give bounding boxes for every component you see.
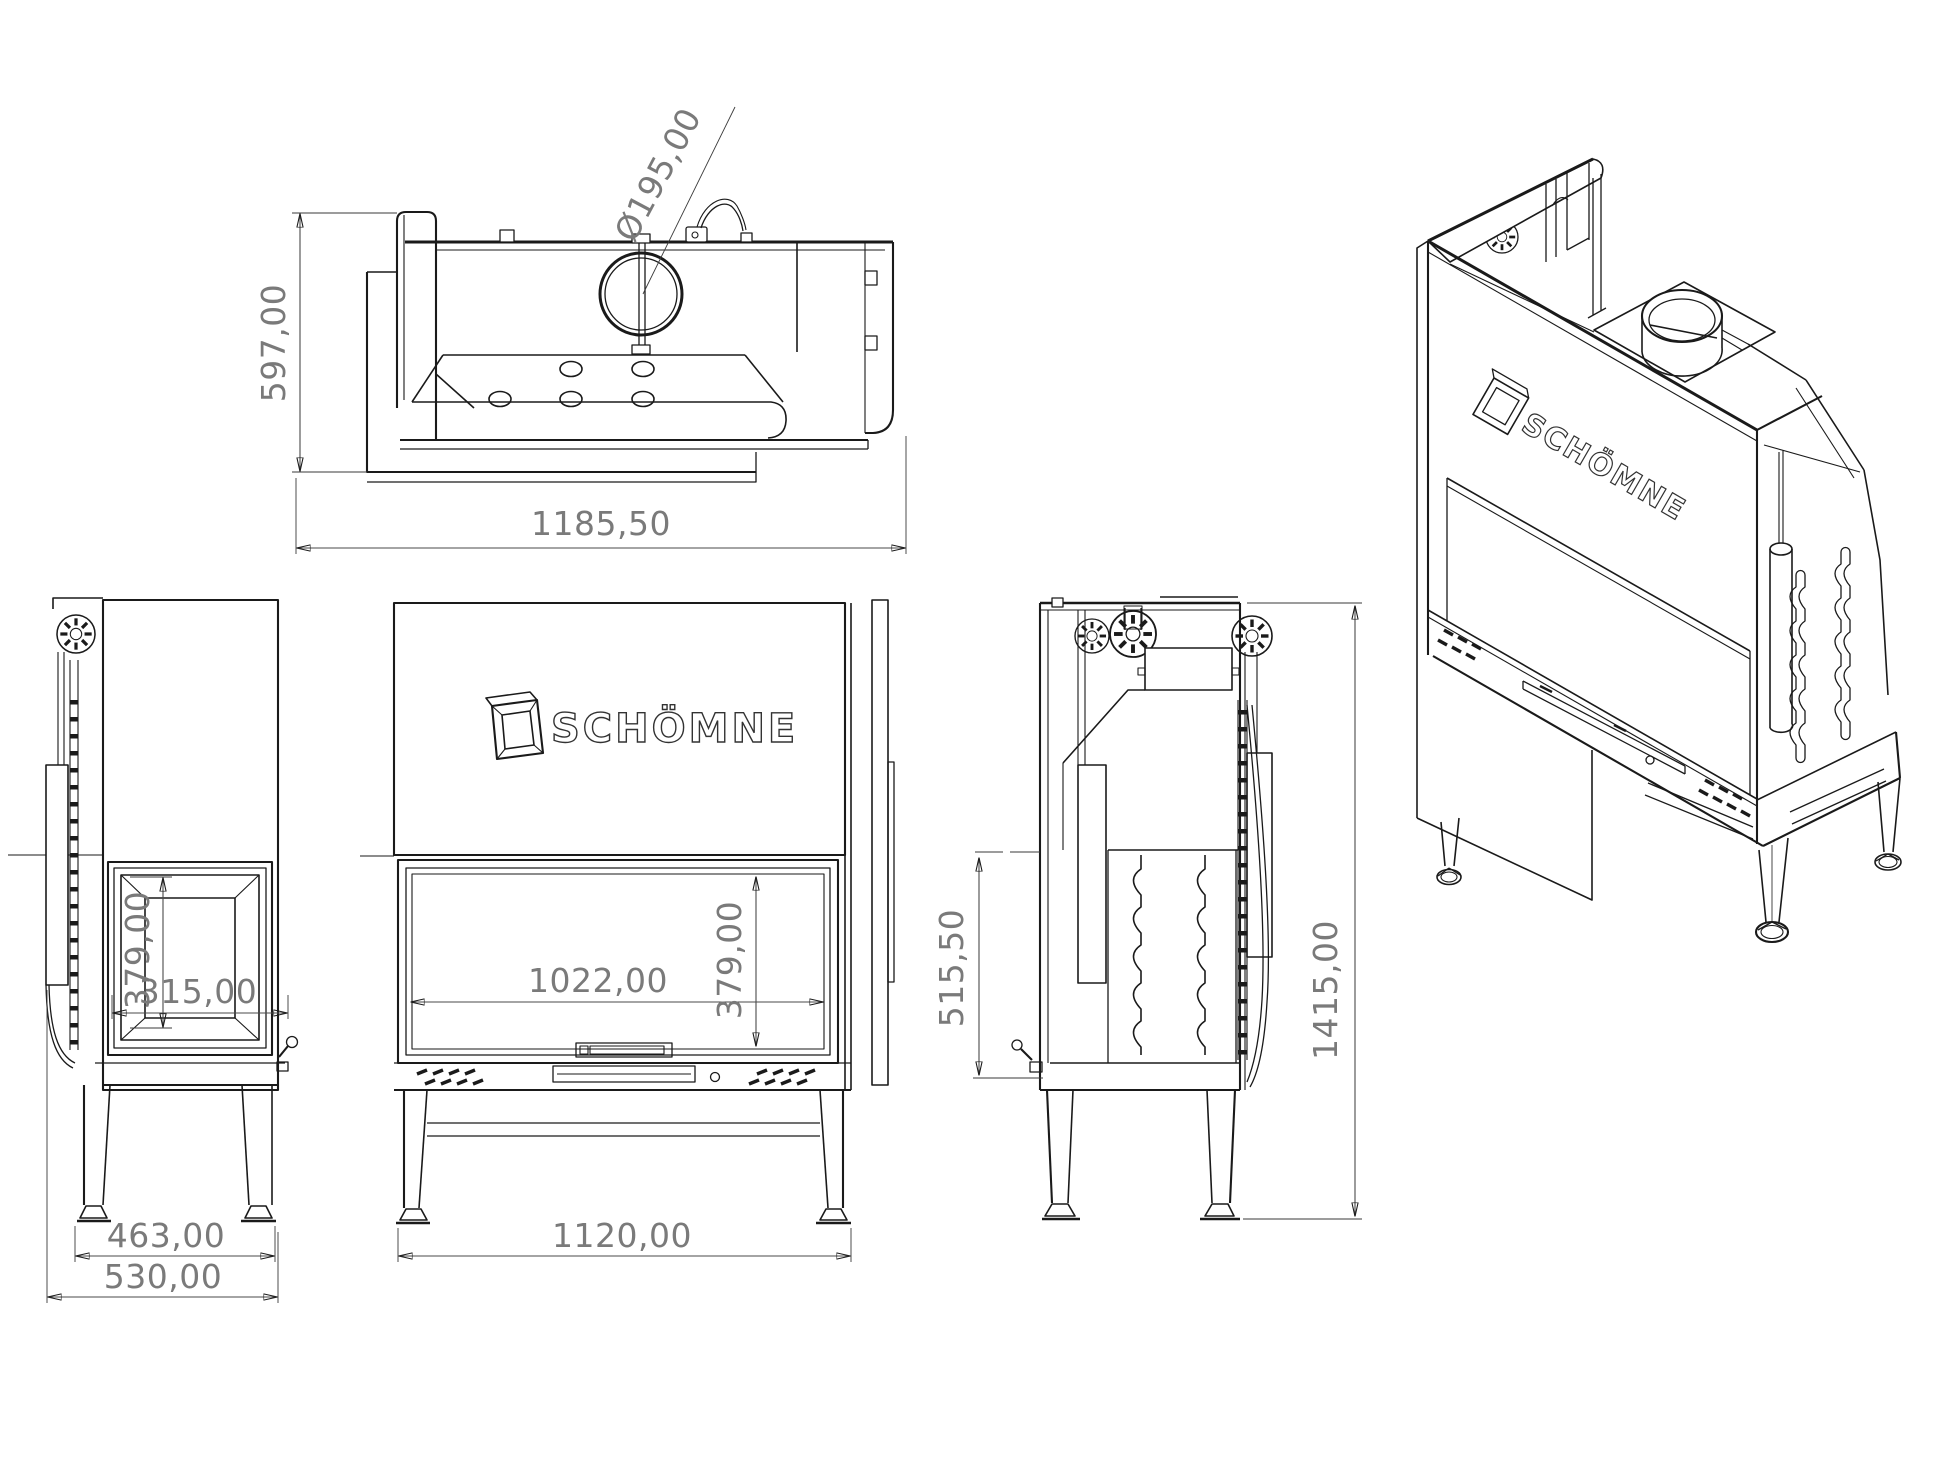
dim-label-515: 515,50 <box>932 909 971 1027</box>
dim-section-firebox-height: 515,50 <box>932 852 1043 1078</box>
side-left-view: 379,00 315,00 463,00 530,00 <box>8 598 298 1303</box>
dim-top-width: 1185,50 <box>296 436 906 554</box>
dim-label-379-front: 379,00 <box>710 901 749 1019</box>
dim-front-width: 1120,00 <box>398 1216 851 1262</box>
dim-front-glass-height: 379,00 <box>710 877 756 1046</box>
louver-vents-right <box>749 1070 815 1084</box>
dim-label-1185: 1185,50 <box>531 504 671 543</box>
louver-vents-left <box>417 1070 483 1084</box>
dim-label-463: 463,00 <box>107 1216 225 1255</box>
technical-drawing: 597,00 1185,50 Ø195,00 <box>0 0 1946 1460</box>
dim-top-height: 597,00 <box>254 213 397 472</box>
side-right-view: 515,50 1415,00 <box>932 597 1362 1219</box>
pulley-wheel-icon <box>57 615 95 653</box>
pulley-wheel-icon <box>1232 616 1272 656</box>
brand-logo-icon <box>486 692 543 759</box>
front-view: SCHÖMNE 1 <box>360 600 894 1262</box>
side-vent-slots <box>1790 548 1850 763</box>
brand-logo-iso: SCHÖMNE <box>1468 369 1698 530</box>
dim-front-glass-width: 1022,00 <box>411 961 823 1002</box>
isometric-view: SCHÖMNE <box>1417 159 1901 942</box>
brand-logo: SCHÖMNE <box>486 692 798 759</box>
air-control-knob <box>711 1073 720 1082</box>
dim-label-195: Ø195,00 <box>607 101 709 247</box>
dim-label-530: 530,00 <box>104 1257 222 1296</box>
drawing-sheet: 597,00 1185,50 Ø195,00 <box>0 0 1946 1460</box>
dim-label-315: 315,00 <box>139 972 257 1011</box>
brand-logo-text: SCHÖMNE <box>551 704 798 752</box>
flue-collar <box>1642 290 1722 376</box>
dim-label-1022: 1022,00 <box>528 961 668 1000</box>
dim-side-leg-span: 463,00 <box>75 1216 275 1262</box>
top-view: 597,00 1185,50 Ø195,00 <box>254 101 906 554</box>
brand-logo-text: SCHÖMNE <box>1516 405 1694 529</box>
louver-vents-iso-left <box>1438 630 1481 659</box>
pulley-wheel-icon <box>1075 619 1109 653</box>
louver-vents-iso-right <box>1699 780 1750 816</box>
dim-label-597: 597,00 <box>254 284 293 402</box>
spring-coil <box>1134 855 1142 1055</box>
dim-label-1120: 1120,00 <box>552 1216 692 1255</box>
dim-side-glass-width: 315,00 <box>112 972 288 1019</box>
dim-label-1415: 1415,00 <box>1306 920 1345 1060</box>
gas-spring-tube <box>1770 450 1793 732</box>
spring-coil <box>1198 855 1206 1055</box>
